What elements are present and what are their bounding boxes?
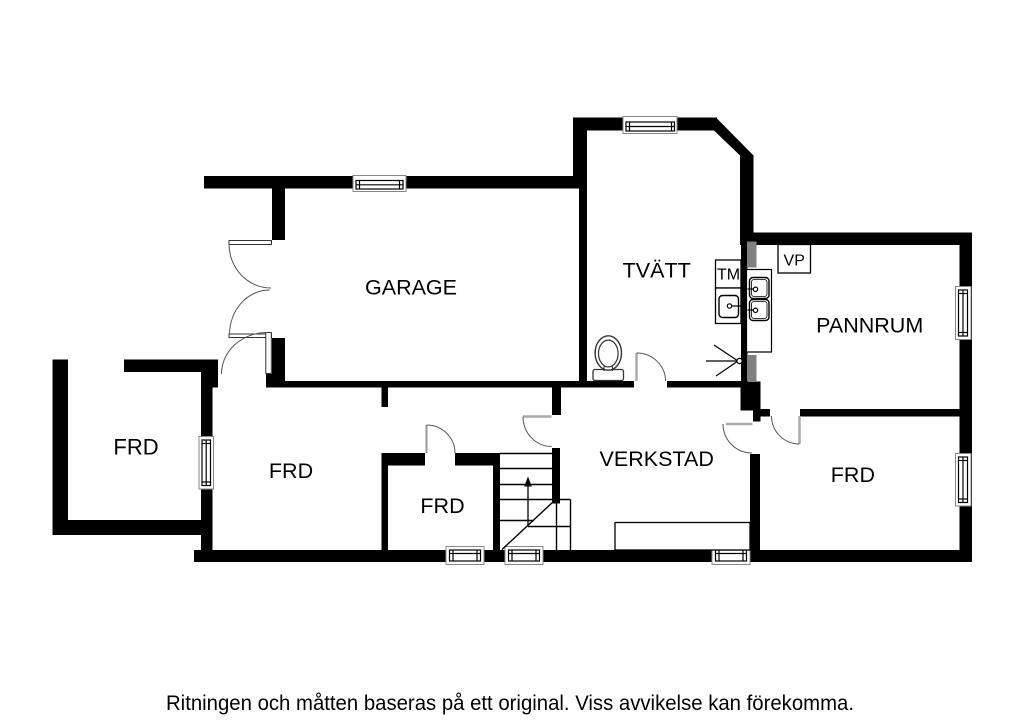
svg-text:FRD: FRD (113, 435, 158, 460)
svg-text:TVÄTT: TVÄTT (623, 258, 691, 282)
svg-text:GARAGE: GARAGE (365, 276, 457, 300)
svg-text:VP: VP (784, 253, 805, 270)
svg-text:FRD: FRD (269, 459, 313, 483)
svg-text:FRD: FRD (831, 463, 875, 487)
svg-text:VERKSTAD: VERKSTAD (600, 447, 714, 471)
svg-text:FRD: FRD (420, 494, 464, 518)
svg-text:TM: TM (717, 267, 740, 284)
svg-text:PANNRUM: PANNRUM (816, 313, 923, 337)
svg-text:Ritningen och måtten baseras p: Ritningen och måtten baseras på ett orig… (166, 691, 854, 715)
